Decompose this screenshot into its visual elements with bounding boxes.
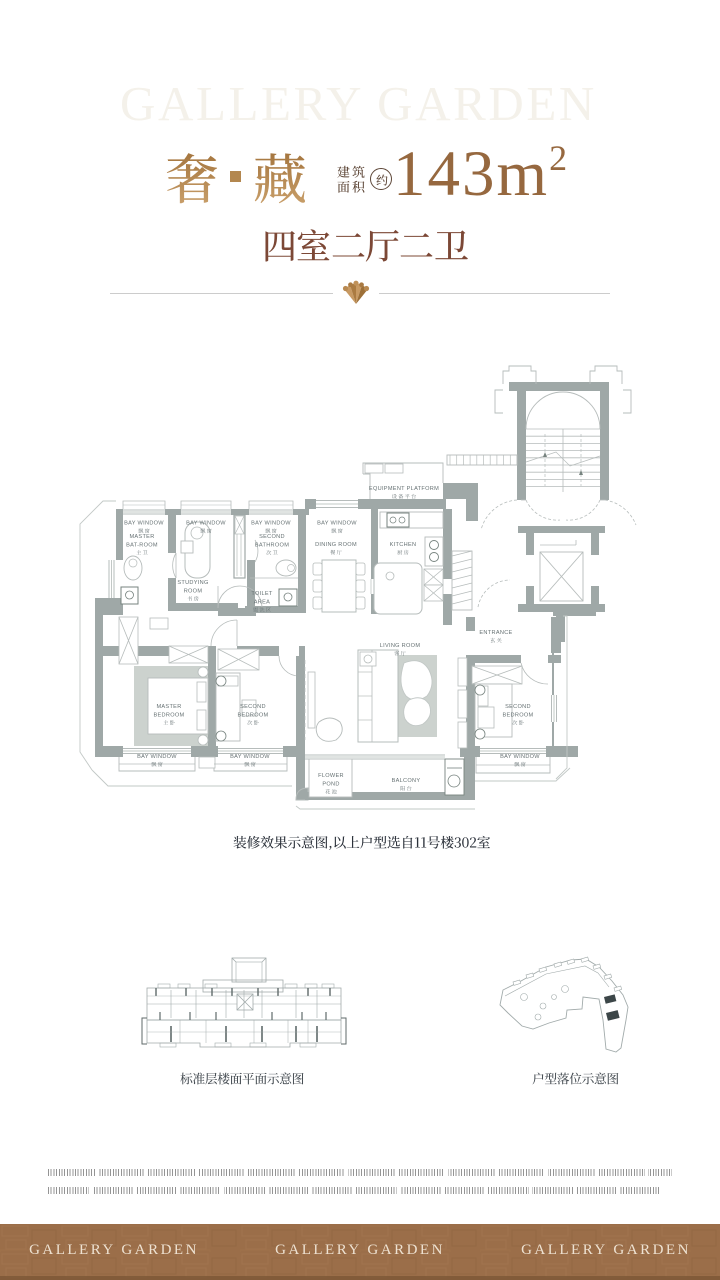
svg-text:SECOND: SECOND	[505, 704, 531, 710]
svg-text:BALCONY: BALCONY	[392, 778, 421, 784]
svg-text:BAY WINDOW: BAY WINDOW	[186, 521, 226, 527]
svg-text:BEDROOM: BEDROOM	[153, 712, 184, 718]
svg-text:BAY WINDOW: BAY WINDOW	[124, 521, 164, 527]
svg-text:EQUIPMENT PLATFORM: EQUIPMENT PLATFORM	[369, 486, 439, 492]
svg-text:KITCHEN: KITCHEN	[390, 542, 417, 548]
svg-text:SECOND: SECOND	[259, 534, 285, 540]
svg-text:ENTRANCE: ENTRANCE	[479, 630, 512, 636]
svg-text:BAY WINDOW: BAY WINDOW	[251, 521, 291, 527]
svg-text:DINING ROOM: DINING ROOM	[315, 542, 357, 548]
svg-text:MASTER: MASTER	[129, 534, 154, 540]
svg-text:TOILET: TOILET	[251, 591, 273, 597]
svg-text:BAY WINDOW: BAY WINDOW	[317, 521, 357, 527]
svg-text:SECOND: SECOND	[240, 704, 266, 710]
svg-text:POND: POND	[322, 781, 339, 787]
svg-text:BAY WINDOW: BAY WINDOW	[500, 754, 540, 760]
svg-text:LIVING ROOM: LIVING ROOM	[380, 643, 421, 649]
svg-text:ROOM: ROOM	[184, 588, 203, 594]
svg-text:BEDROOM: BEDROOM	[237, 712, 268, 718]
svg-text:BEDROOM: BEDROOM	[502, 712, 533, 718]
svg-text:FLOWER: FLOWER	[318, 773, 344, 779]
svg-text:BAT-ROOM: BAT-ROOM	[126, 542, 158, 548]
svg-text:STUDYING: STUDYING	[177, 580, 208, 586]
svg-text:BAY WINDOW: BAY WINDOW	[230, 754, 270, 760]
svg-text:AREA: AREA	[254, 599, 270, 605]
svg-text:BAY WINDOW: BAY WINDOW	[137, 754, 177, 760]
svg-text:BATHROOM: BATHROOM	[255, 542, 289, 548]
svg-text:MASTER: MASTER	[156, 704, 181, 710]
